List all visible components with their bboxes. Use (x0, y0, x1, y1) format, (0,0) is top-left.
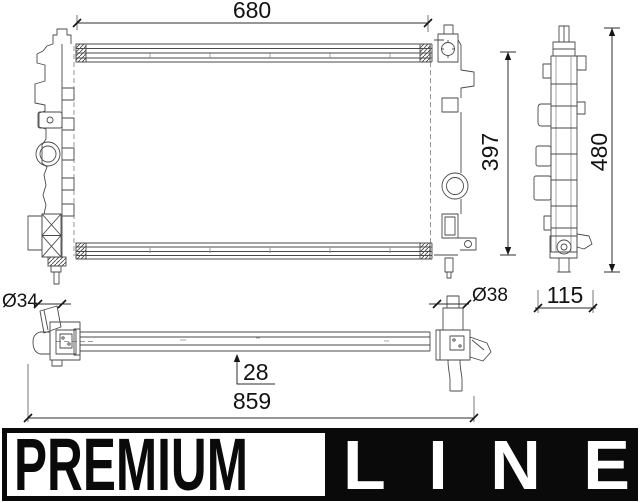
premium-line-logo: PREMIUM LINE (2, 423, 638, 503)
dimension-overall-height: 480 (586, 28, 620, 272)
bottom-view-body (56, 329, 430, 355)
radiator-technical-drawing-page: 680 397 480 115 Ø34 Ø38 28 859 (0, 0, 640, 503)
dimension-label-overall-length: 859 (233, 388, 271, 414)
dimension-inlet-diameter: Ø34 (2, 291, 71, 312)
dimension-label-overall-height: 480 (586, 133, 612, 171)
dimension-label-core-width: 680 (233, 0, 271, 23)
front-view (28, 25, 476, 284)
dimension-side-depth: 115 (534, 282, 597, 313)
dimension-core-height: 397 (477, 52, 516, 255)
dimension-core-depth: 28 (234, 354, 275, 385)
radiator-technical-drawing: 680 397 480 115 Ø34 Ø38 28 859 (0, 0, 640, 503)
dimension-core-width: 680 (73, 0, 432, 32)
dimension-label-inlet-diameter: Ø34 (2, 291, 38, 312)
dimension-label-core-height: 397 (477, 133, 503, 171)
side-view (534, 26, 592, 272)
logo-premium-text: PREMIUM (14, 423, 248, 503)
bottom-view-left-fitting (33, 306, 80, 366)
dimension-outlet-diameter: Ø38 (429, 285, 508, 308)
bottom-view-right-fitting (436, 296, 491, 391)
dimension-label-core-depth: 28 (243, 359, 269, 385)
front-view-left-tank (28, 29, 74, 284)
front-view-right-tank (434, 25, 476, 278)
dimension-label-outlet-diameter: Ø38 (472, 285, 508, 306)
dimension-label-side-depth: 115 (547, 282, 584, 308)
radiator-core (74, 44, 432, 259)
